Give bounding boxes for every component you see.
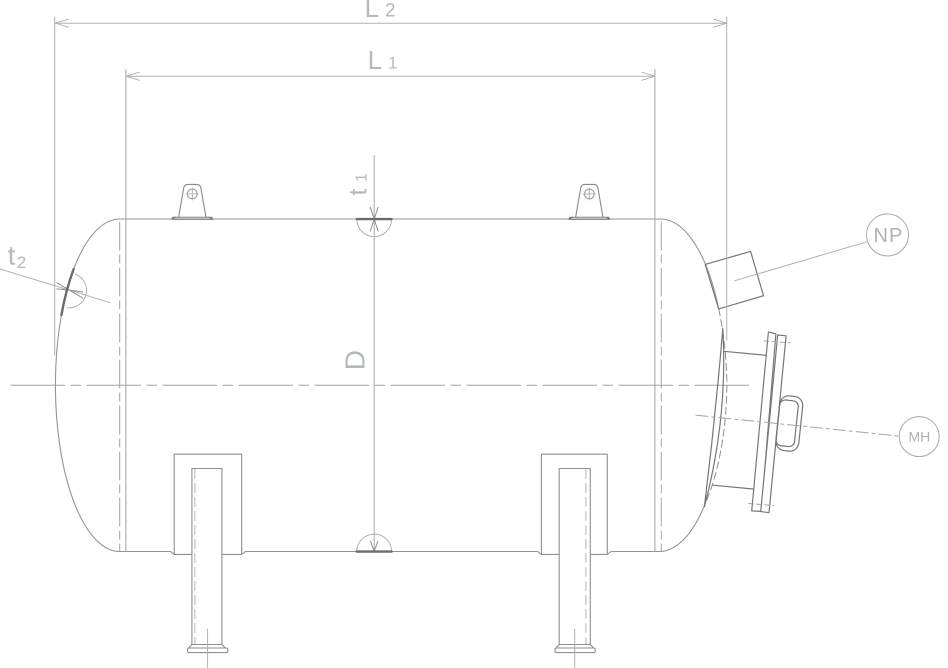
svg-text:t: t (345, 189, 373, 196)
svg-text:1: 1 (354, 173, 371, 182)
svg-text:2: 2 (385, 0, 396, 21)
svg-text:MH: MH (909, 429, 931, 445)
svg-text:t: t (8, 241, 16, 271)
svg-text:D: D (340, 350, 371, 370)
svg-text:1: 1 (388, 53, 397, 72)
svg-text:L: L (365, 0, 379, 23)
svg-text:NP: NP (874, 225, 904, 247)
svg-text:L: L (368, 45, 382, 75)
svg-text:2: 2 (17, 253, 26, 272)
